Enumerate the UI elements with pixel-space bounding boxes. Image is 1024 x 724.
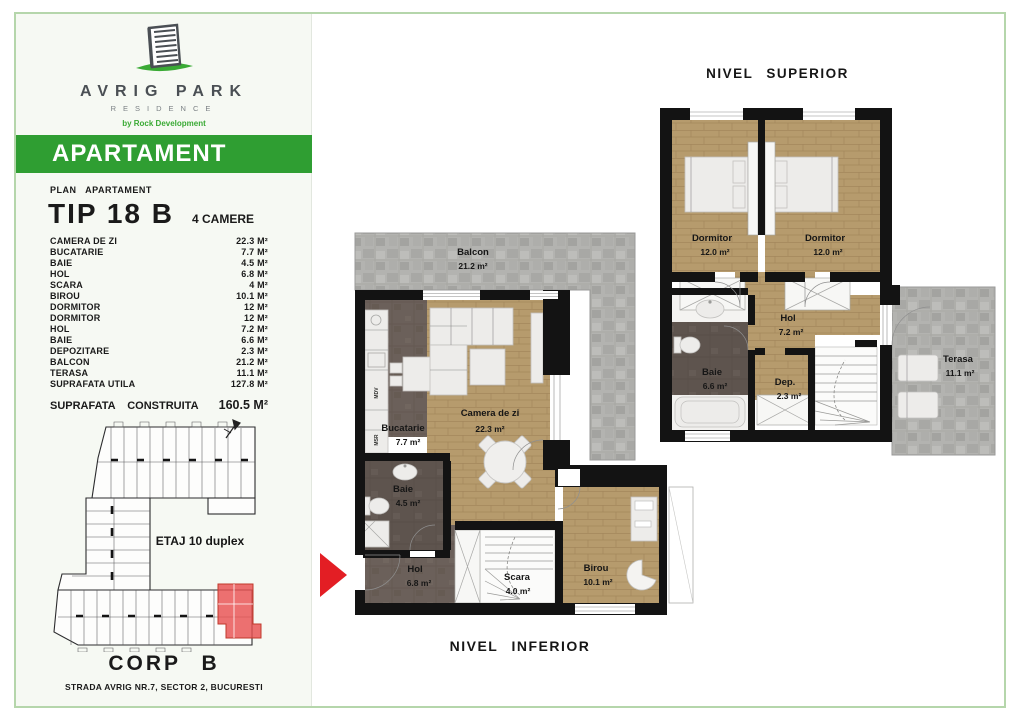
room-label-dep: Dep. [775, 377, 796, 388]
room-row: DORMITOR12 M² [50, 313, 268, 324]
plan-label: PLAN APARTAMENT [50, 185, 152, 195]
stairs-superior [815, 347, 877, 425]
svg-text:6.8 m²: 6.8 m² [407, 578, 432, 588]
room-label-baie-sup: Baie [702, 367, 722, 378]
svg-text:21.2 m²: 21.2 m² [458, 261, 487, 271]
svg-text:22.3 m²: 22.3 m² [475, 424, 504, 434]
room-row: BAIE4.5 M² [50, 258, 268, 269]
coffee-table [470, 349, 505, 385]
brand-name: AVRIG PARK [16, 83, 312, 101]
title-nivel-inferior: NIVEL INFERIOR [390, 638, 650, 654]
floorplan-superior: Dormitor 12.0 m² Dormitor 12.0 m² Hol 7.… [655, 60, 1015, 460]
total-area-value: 160.5 M² [219, 398, 268, 412]
room-row: HOL7.2 M² [50, 324, 268, 335]
svg-text:7.2 m²: 7.2 m² [779, 327, 804, 337]
wardrobe [748, 142, 758, 235]
room-row: TERASA11.1 M² [50, 368, 268, 379]
svg-text:12.0 m²: 12.0 m² [813, 247, 842, 257]
address: STRADA AVRIG NR.7, SECTOR 2, BUCURESTI [16, 682, 312, 692]
room-row: DORMITOR12 M² [50, 302, 268, 313]
desk [631, 497, 657, 541]
brand-residence: RESIDENCE [16, 104, 312, 113]
svg-text:4.0 m²: 4.0 m² [506, 586, 531, 596]
building-logo-icon [132, 22, 196, 76]
room-row: DEPOZITARE2.3 M² [50, 346, 268, 357]
room-label-hol-inf: Hol [407, 564, 422, 575]
room-label-balcon: Balcon [457, 247, 489, 258]
room-row: CAMERA DE ZI22.3 M² [50, 236, 268, 247]
room-label-bucatarie: Bucatarie [381, 423, 424, 434]
room-area-list: CAMERA DE ZI22.3 M² BUCATARIE7.7 M² BAIE… [50, 236, 268, 390]
room-label-terasa: Terasa [943, 354, 974, 365]
svg-text:4.5 m²: 4.5 m² [396, 498, 421, 508]
svg-text:11.1 m²: 11.1 m² [946, 368, 975, 378]
apartment-type-row: TIP 18 B 4 CAMERE [48, 198, 254, 230]
room-label-camera-de-zi: Camera de zi [461, 408, 520, 419]
tv-console [531, 313, 543, 383]
room-row: BAIE6.6 M² [50, 335, 268, 346]
room-row: BIROU10.1 M² [50, 291, 268, 302]
room-label-scara: Scara [504, 572, 531, 583]
apartament-banner: APARTAMENT [16, 135, 312, 173]
logo: AVRIG PARK RESIDENCE by Rock Development [16, 22, 312, 128]
room-label-dormitor-right: Dormitor [805, 233, 845, 244]
room-terasa [892, 287, 995, 455]
room-label-baie-inf: Baie [393, 484, 413, 495]
entrance-arrow [320, 553, 347, 597]
apartment-type: TIP 18 B [48, 198, 174, 230]
room-row: SUPRAFATA UTILA127.8 M² [50, 379, 268, 390]
svg-text:2.3 m²: 2.3 m² [777, 391, 802, 401]
rooms-count: 4 CAMERE [192, 212, 254, 226]
room-row: HOL6.8 M² [50, 269, 268, 280]
svg-text:6.6 m²: 6.6 m² [703, 381, 728, 391]
wardrobe [765, 142, 775, 235]
room-row: BUCATARIE7.7 M² [50, 247, 268, 258]
appliance-label-mdv: MDV [374, 387, 380, 399]
room-row: BALCON21.2 M² [50, 357, 268, 368]
svg-text:7.7 m²: 7.7 m² [396, 437, 421, 447]
svg-text:10.1 m²: 10.1 m² [583, 577, 612, 587]
brand-tagline: by Rock Development [16, 119, 312, 128]
brochure-page: AVRIG PARK RESIDENCE by Rock Development… [0, 0, 1024, 724]
appliance-label-msr: MSR [374, 434, 380, 446]
total-area-label: SUPRAFATA CONSTRUITA [50, 400, 199, 412]
site-plan: ETAJ 10 duplex [48, 414, 276, 652]
sidebar: AVRIG PARK RESIDENCE by Rock Development… [16, 14, 312, 706]
room-label-birou: Birou [584, 563, 609, 574]
building-corp-label: CORP B [16, 652, 312, 676]
room-row: SCARA4 M² [50, 280, 268, 291]
svg-text:12.0 m²: 12.0 m² [700, 247, 729, 257]
floor-label: ETAJ 10 duplex [156, 534, 245, 548]
floorplan-inferior: MDV MSR [315, 225, 700, 625]
total-area-row: SUPRAFATA CONSTRUITA 160.5 M² [50, 398, 268, 412]
room-label-hol-sup: Hol [780, 313, 795, 324]
